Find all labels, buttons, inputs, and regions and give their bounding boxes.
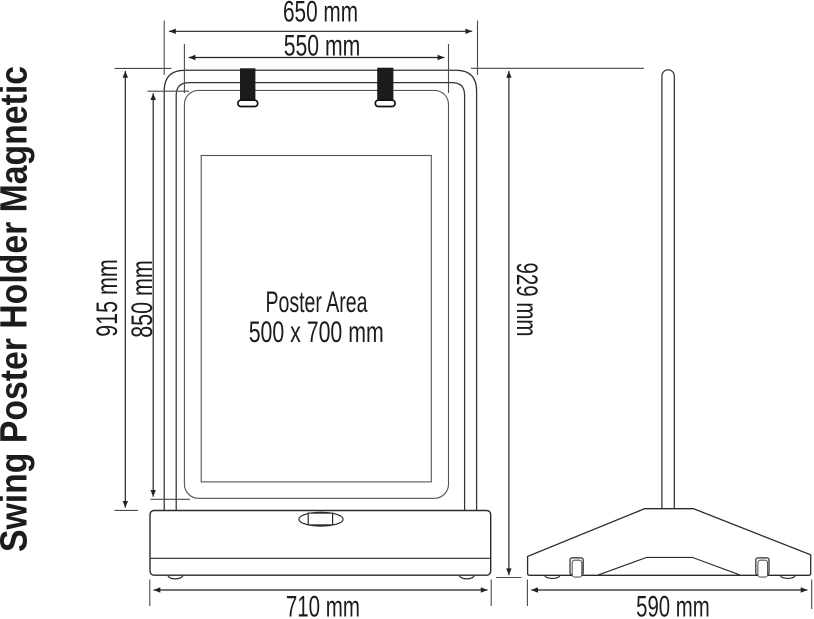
svg-text:590 mm: 590 mm xyxy=(636,591,710,619)
svg-text:850 mm: 850 mm xyxy=(126,260,159,338)
svg-text:Poster Area: Poster Area xyxy=(266,286,368,319)
svg-text:550 mm: 550 mm xyxy=(284,29,361,62)
svg-text:500 x 700 mm: 500 x 700 mm xyxy=(249,316,384,349)
svg-text:Swing Poster Holder Magnetic: Swing Poster Holder Magnetic xyxy=(0,66,36,552)
svg-text:929 mm: 929 mm xyxy=(510,263,543,337)
svg-text:915 mm: 915 mm xyxy=(91,259,124,337)
svg-text:650 mm: 650 mm xyxy=(283,0,358,29)
svg-text:710 mm: 710 mm xyxy=(286,591,360,619)
